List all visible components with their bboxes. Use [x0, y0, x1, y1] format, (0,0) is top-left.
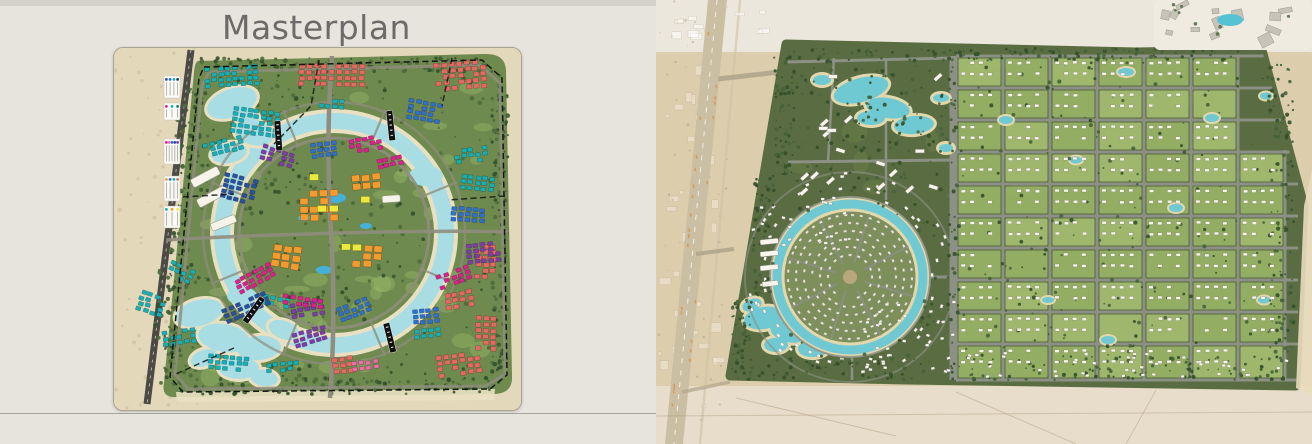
masterplan-illustration	[113, 47, 522, 411]
legend-dot	[176, 105, 179, 108]
legend-dot	[165, 141, 168, 144]
legend-dot	[173, 78, 176, 81]
legend-dot	[176, 141, 179, 144]
legend-dot	[176, 78, 179, 81]
legend-dot	[176, 208, 179, 211]
legend-dot	[169, 178, 172, 181]
lagoon	[857, 111, 885, 125]
legend-dot	[165, 178, 168, 181]
legend-dot	[176, 178, 179, 181]
pond	[1042, 297, 1054, 303]
legend-dot	[173, 141, 176, 144]
legend-dot	[165, 105, 168, 108]
pond	[999, 116, 1013, 124]
pool	[316, 266, 332, 274]
top-border	[0, 0, 656, 6]
masterplan-map	[114, 48, 521, 410]
masterplan-panel: Masterplan	[0, 0, 656, 444]
aerial-map	[656, 0, 1312, 444]
resort-pool	[1217, 14, 1243, 26]
pond	[1169, 204, 1183, 212]
housing-cluster	[361, 196, 370, 202]
housing-cluster	[331, 355, 354, 374]
page-title: Masterplan	[113, 8, 520, 47]
aerial-photo-panel	[656, 0, 1312, 444]
housing-cluster	[310, 174, 319, 180]
pool	[360, 223, 372, 229]
pond	[1205, 114, 1219, 122]
pond	[1101, 336, 1115, 344]
legend-dot	[169, 78, 172, 81]
resort-area	[1154, 0, 1312, 50]
legend-dot	[165, 78, 168, 81]
legend-dot	[173, 178, 176, 181]
legend-dot	[171, 141, 174, 144]
legend-dot	[168, 141, 171, 144]
legend-dot	[165, 208, 168, 211]
horizontal-divider	[0, 413, 656, 414]
legend-dot	[171, 208, 174, 211]
community-building	[382, 195, 400, 203]
lagoon	[764, 338, 788, 352]
legend-dot	[171, 105, 174, 108]
